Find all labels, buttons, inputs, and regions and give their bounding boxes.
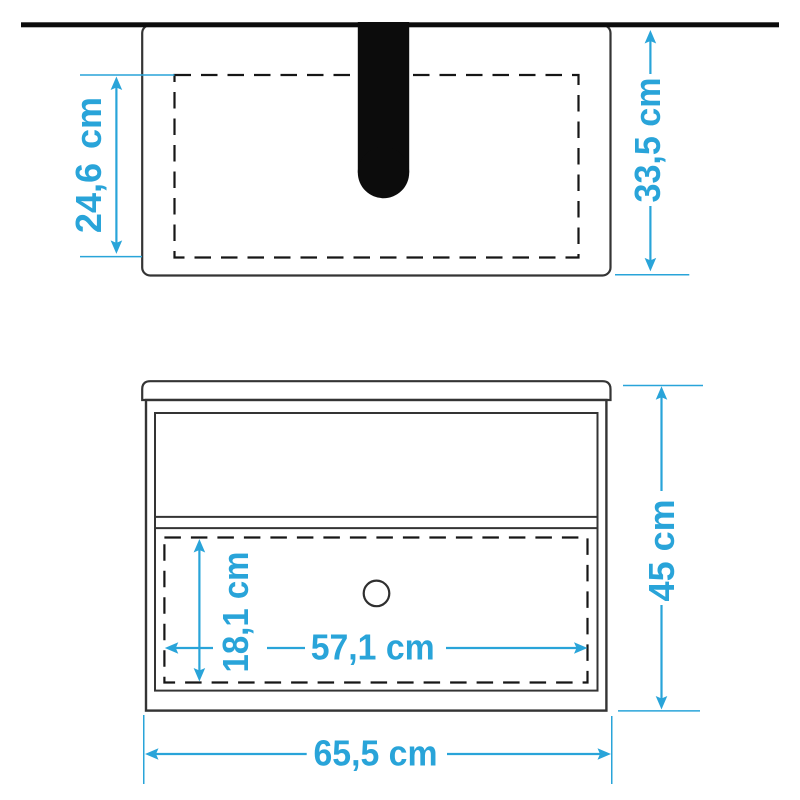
svg-text:65,5 cm: 65,5 cm xyxy=(314,732,438,773)
svg-text:24,6 cm: 24,6 cm xyxy=(68,97,109,233)
svg-text:18,1 cm: 18,1 cm xyxy=(215,552,256,673)
svg-text:33,5 cm: 33,5 cm xyxy=(627,78,668,203)
svg-text:45 cm: 45 cm xyxy=(641,499,682,601)
svg-text:57,1 cm: 57,1 cm xyxy=(311,627,435,668)
